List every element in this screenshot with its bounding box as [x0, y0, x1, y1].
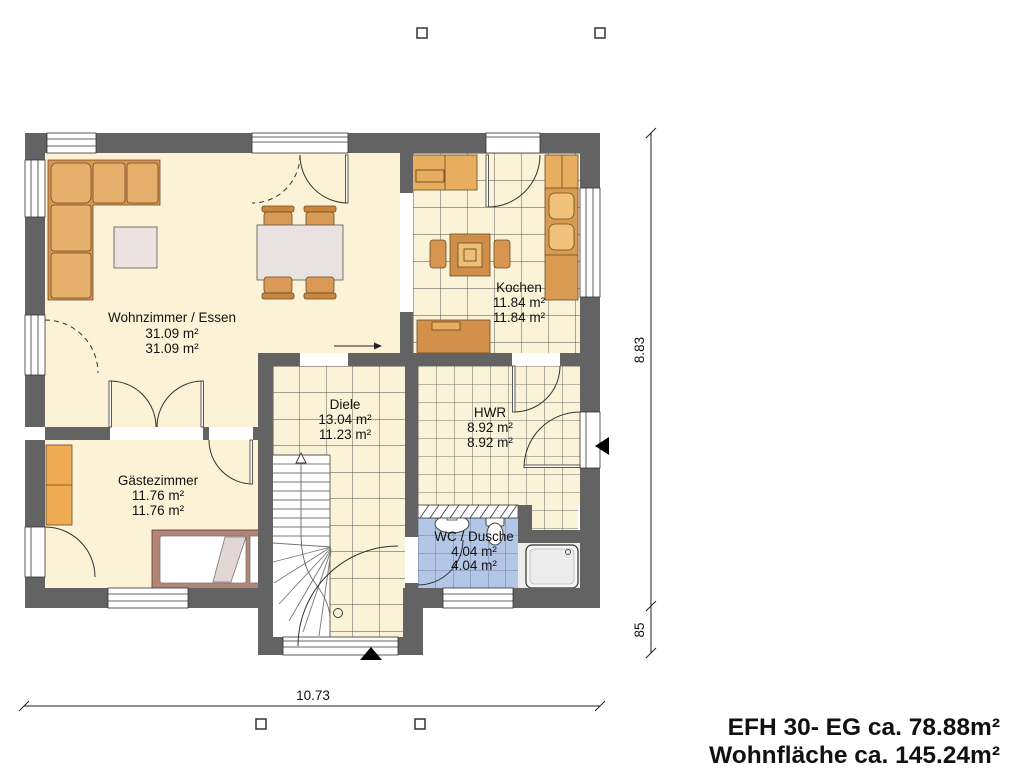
front-door-opening [283, 637, 398, 655]
window-left-living-1 [25, 160, 45, 217]
terrace-door-opening [252, 133, 348, 153]
kitchen-chair [430, 240, 446, 268]
dining-table [257, 225, 343, 280]
downpipe-square-icon [415, 719, 425, 729]
dining-chair [264, 277, 292, 293]
coffee-table [114, 227, 157, 268]
kitchen-counter-top [412, 155, 477, 190]
downpipe-square-icon [595, 28, 605, 38]
guest-room-area2: 11.76 m² [132, 503, 185, 518]
kitchen-chair [494, 240, 510, 268]
hall-area2: 11.23 m² [319, 427, 372, 442]
window-top-living [47, 133, 96, 153]
downpipe-square-icon [417, 28, 427, 38]
bath-area2: 4.04 m² [451, 558, 497, 573]
dining-chair [262, 206, 294, 212]
utility-area1: 8.92 m² [467, 420, 513, 435]
window-bottom-guest [108, 588, 188, 608]
title-line-1: EFH 30- EG ca. 78.88m² [728, 714, 1000, 741]
kitchen-label: Kochen [496, 280, 542, 295]
living-room-floor-lower [45, 353, 258, 427]
bath-area1: 4.04 m² [451, 544, 497, 559]
window-bottom-bath [443, 588, 513, 608]
glass-partition-hatch [418, 505, 518, 518]
title-line-2: Wohnfläche ca. 145.24m² [709, 742, 1000, 768]
dim-width-total: 10.73 [296, 688, 330, 703]
french-door-left-guest [25, 527, 45, 577]
kitchen-area1: 11.84 m² [493, 295, 546, 310]
hall-label: Diele [330, 397, 361, 412]
kitchen-exterior-door-opening [486, 133, 540, 153]
downpipe-square-icon [256, 719, 266, 729]
utility-tiles-ext [532, 505, 578, 530]
kitchen-sink [549, 224, 574, 250]
living-room-label: Wohnzimmer / Essen [108, 310, 236, 325]
window-right-kitchen [580, 188, 600, 297]
utility-area2: 8.92 m² [467, 435, 513, 450]
kitchen-area2: 11.84 m² [493, 310, 546, 325]
dim-height-total: 8.83 [632, 337, 647, 363]
living-room-area2: 31.09 m² [145, 341, 199, 356]
utility-label: HWR [474, 405, 506, 420]
guest-room-area1: 11.76 m² [132, 488, 185, 503]
kitchen-sink [549, 193, 574, 219]
kitchen-tall-cabinet [545, 155, 578, 190]
plan-title: EFH 30- EG ca. 78.88m² Wohnfläche ca. 14… [709, 714, 1000, 768]
french-door-left-living [25, 315, 45, 375]
dim-height-lower: 85 [632, 622, 647, 637]
dining-chair [306, 277, 334, 293]
floor-plan-drawing: Wohnzimmer / Essen 31.09 m² 31.09 m² Koc… [0, 0, 1024, 768]
utility-exterior-door-opening [580, 412, 600, 468]
staircase [273, 453, 331, 637]
guest-room-label: Gästezimmer [118, 473, 199, 488]
dining-chair [304, 206, 336, 212]
bath-label: WC / Dusche [434, 529, 514, 544]
floor-plan-page: Wohnzimmer / Essen 31.09 m² 31.09 m² Koc… [0, 0, 1024, 768]
living-room-area1: 31.09 m² [145, 326, 199, 341]
hall-area1: 13.04 m² [318, 412, 372, 427]
